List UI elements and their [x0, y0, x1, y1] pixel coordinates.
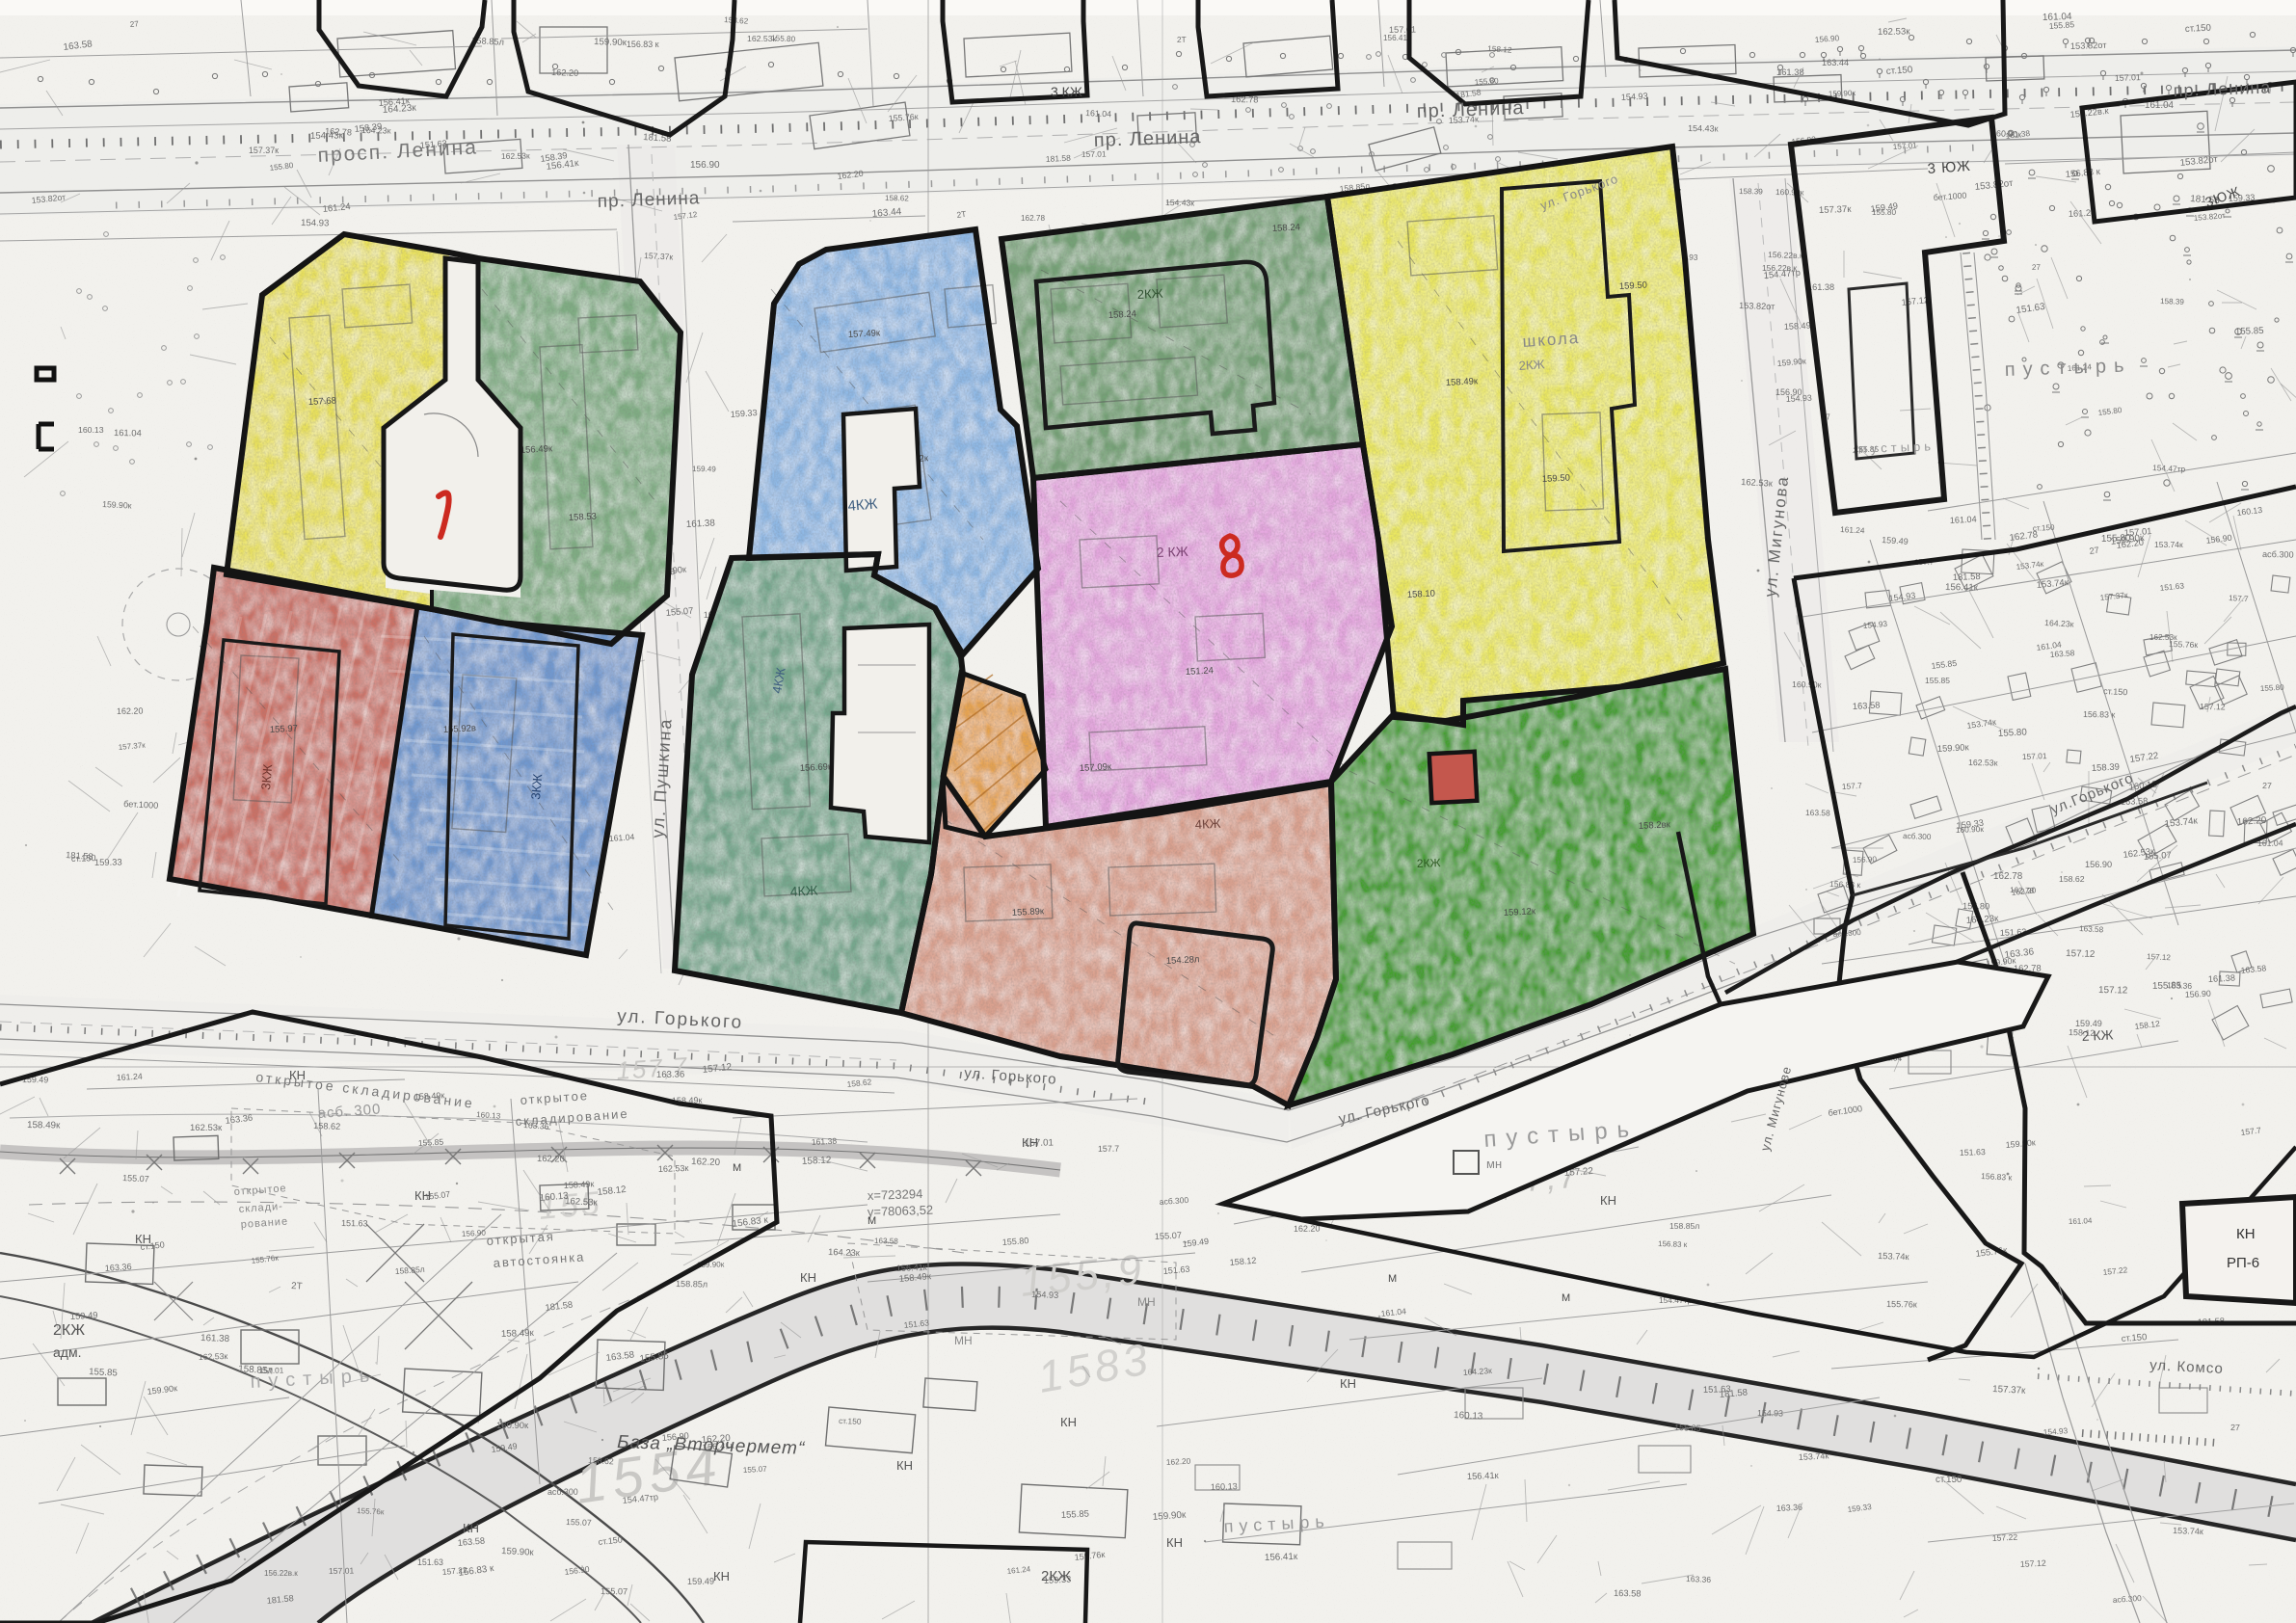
svg-text:159.90к: 159.90к — [501, 1546, 535, 1558]
svg-text:156.83 к: 156.83 к — [627, 40, 659, 49]
svg-text:158.62: 158.62 — [885, 194, 909, 202]
svg-text:162.20: 162.20 — [537, 1153, 565, 1163]
svg-text:160.90к: 160.90к — [496, 1421, 529, 1431]
svg-text:158.12: 158.12 — [1487, 43, 1512, 55]
svg-text:адм.: адм. — [53, 1344, 81, 1360]
svg-text:160.13: 160.13 — [476, 1110, 501, 1121]
svg-text:27: 27 — [2089, 545, 2100, 556]
svg-text:160.13: 160.13 — [1211, 1481, 1238, 1492]
svg-text:161.24: 161.24 — [117, 1072, 144, 1082]
svg-text:163.58: 163.58 — [1853, 700, 1881, 711]
svg-text:ст.150: ст.150 — [1885, 65, 1913, 77]
svg-text:2КЖ: 2КЖ — [1417, 856, 1441, 870]
svg-text:157.49к: 157.49к — [848, 328, 882, 340]
svg-text:РП-6: РП-6 — [2227, 1255, 2259, 1271]
svg-text:бет.1000: бет.1000 — [123, 799, 159, 811]
svg-text:154.93: 154.93 — [1786, 393, 1813, 404]
svg-text:154.28л: 154.28л — [1166, 954, 1200, 967]
svg-text:157.7: 157.7 — [1098, 1144, 1119, 1154]
svg-text:161.38: 161.38 — [812, 1136, 838, 1147]
svg-text:асб.300: асб.300 — [2112, 1593, 2142, 1605]
svg-text:162.20: 162.20 — [2236, 815, 2267, 828]
svg-text:x=723294: x=723294 — [868, 1186, 923, 1203]
svg-text:3 ЮЖ: 3 ЮЖ — [1927, 158, 1971, 177]
svg-text:27: 27 — [2230, 1423, 2240, 1432]
svg-text:156.22в.к: 156.22в.к — [1762, 263, 1797, 273]
svg-text:159.12к: 159.12к — [1504, 906, 1537, 918]
svg-text:155.85: 155.85 — [1061, 1508, 1090, 1521]
svg-text:КН: КН — [896, 1458, 913, 1473]
svg-text:160.13: 160.13 — [1454, 1410, 1483, 1423]
svg-text:157.7: 157.7 — [1842, 781, 1863, 791]
svg-text:162.53к: 162.53к — [565, 1196, 599, 1209]
svg-text:158.12: 158.12 — [802, 1155, 833, 1167]
svg-text:160.90к: 160.90к — [1792, 679, 1822, 690]
svg-text:163.58: 163.58 — [1805, 808, 1830, 817]
svg-text:155.85: 155.85 — [2235, 326, 2264, 337]
svg-text:153.82от: 153.82от — [1739, 301, 1775, 311]
svg-text:158.85л: 158.85л — [1669, 1221, 1699, 1231]
svg-text:155.80: 155.80 — [771, 34, 796, 43]
svg-text:156.41к: 156.41к — [1467, 1470, 1500, 1481]
svg-text:155.80: 155.80 — [2260, 683, 2285, 693]
svg-text:ст.150: ст.150 — [1936, 1475, 1962, 1485]
svg-text:2T: 2T — [1177, 35, 1187, 44]
svg-text:154.93: 154.93 — [301, 218, 330, 229]
svg-text:4КЖ: 4КЖ — [1194, 816, 1221, 832]
svg-text:155.85: 155.85 — [89, 1367, 118, 1379]
svg-text:2 КЖ: 2 КЖ — [1157, 544, 1188, 560]
svg-text:156.90: 156.90 — [2085, 860, 2112, 869]
svg-text:159.90к: 159.90к — [594, 37, 627, 48]
svg-text:159.49: 159.49 — [1882, 535, 1909, 546]
svg-text:асб.300: асб.300 — [1903, 832, 1932, 841]
svg-text:158.62: 158.62 — [2059, 874, 2085, 884]
svg-text:асб.300: асб.300 — [1159, 1195, 1188, 1207]
svg-text:155.07: 155.07 — [601, 1586, 627, 1596]
svg-text:155.07: 155.07 — [2143, 850, 2172, 863]
svg-text:154.43к: 154.43к — [310, 130, 344, 142]
svg-text:КН: КН — [1060, 1415, 1077, 1429]
svg-text:ст.150: ст.150 — [2185, 23, 2212, 35]
svg-text:159.50: 159.50 — [1619, 279, 1648, 292]
svg-text:158.39: 158.39 — [2160, 297, 2185, 306]
svg-text:157.12: 157.12 — [2066, 948, 2096, 960]
svg-text:157.12: 157.12 — [2020, 1558, 2047, 1569]
svg-text:156.41к: 156.41к — [1945, 582, 1979, 594]
svg-text:163.58: 163.58 — [2079, 924, 2104, 934]
svg-text:ст.150: ст.150 — [2121, 1332, 2147, 1344]
svg-text:161.04: 161.04 — [1950, 515, 1977, 525]
svg-text:пр. Ленина: пр. Ленина — [2173, 77, 2271, 100]
svg-text:КН: КН — [414, 1188, 431, 1203]
svg-text:154.47тр: 154.47тр — [2152, 463, 2186, 474]
svg-text:асб.300: асб.300 — [547, 1487, 578, 1497]
svg-text:2T: 2T — [956, 209, 967, 220]
svg-text:163.44: 163.44 — [1822, 58, 1849, 67]
svg-text:159.49: 159.49 — [687, 1577, 714, 1586]
svg-text:158.49к: 158.49к — [27, 1120, 61, 1131]
svg-text:158.62: 158.62 — [724, 15, 749, 26]
svg-text:151.63: 151.63 — [341, 1218, 368, 1228]
svg-text:КН: КН — [800, 1270, 816, 1285]
svg-text:161.38: 161.38 — [2208, 973, 2236, 984]
svg-text:161.24: 161.24 — [1840, 524, 1865, 535]
svg-text:МН: МН — [1137, 1295, 1156, 1309]
svg-text:27: 27 — [2262, 781, 2272, 790]
svg-text:157.7: 157.7 — [2229, 594, 2249, 603]
svg-text:156.90: 156.90 — [690, 160, 720, 171]
svg-text:162.78: 162.78 — [1021, 214, 1045, 223]
svg-text:158.39: 158.39 — [1739, 187, 1763, 196]
svg-text:151.63: 151.63 — [1703, 1383, 1731, 1395]
svg-text:154.93: 154.93 — [2042, 1425, 2068, 1437]
svg-text:162.78: 162.78 — [1993, 871, 2023, 882]
svg-text:КН: КН — [1166, 1535, 1183, 1550]
svg-text:157.01: 157.01 — [329, 1566, 355, 1576]
svg-text:М: М — [733, 1162, 741, 1174]
svg-text:158.39: 158.39 — [2092, 761, 2121, 774]
svg-text:155.07: 155.07 — [1155, 1231, 1183, 1241]
svg-text:181.58: 181.58 — [1953, 571, 1981, 582]
svg-text:160.13: 160.13 — [78, 425, 104, 435]
svg-text:162.53к: 162.53к — [199, 1351, 228, 1362]
svg-text:157.37к: 157.37к — [249, 146, 279, 155]
svg-text:163.36: 163.36 — [2167, 980, 2193, 991]
svg-text:158.24: 158.24 — [1272, 222, 1301, 234]
svg-text:153.82от: 153.82от — [2070, 40, 2108, 51]
svg-text:155.07: 155.07 — [566, 1517, 592, 1528]
svg-text:163.58: 163.58 — [874, 1237, 898, 1245]
svg-text:КН: КН — [135, 1232, 151, 1246]
svg-text:3КЖ: 3КЖ — [528, 773, 545, 800]
svg-text:156.41к: 156.41к — [1265, 1552, 1298, 1563]
svg-text:158.49к: 158.49к — [501, 1328, 535, 1340]
svg-text:асб.300: асб.300 — [2262, 549, 2294, 560]
svg-text:161.38: 161.38 — [200, 1333, 230, 1344]
svg-text:162.20: 162.20 — [117, 706, 144, 716]
svg-text:4КЖ: 4КЖ — [847, 495, 878, 515]
svg-text:157.68: 157.68 — [308, 395, 337, 408]
svg-text:2КЖ: 2КЖ — [1041, 1568, 1071, 1584]
svg-text:159.90к: 159.90к — [1937, 741, 1970, 754]
svg-text:155.76к: 155.76к — [2169, 639, 2199, 650]
svg-text:2КЖ: 2КЖ — [53, 1322, 85, 1339]
svg-text:181.58: 181.58 — [66, 850, 93, 862]
svg-text:157.01: 157.01 — [2022, 751, 2047, 761]
svg-text:161.04: 161.04 — [2069, 1216, 2093, 1226]
svg-text:155.80: 155.80 — [1001, 1236, 1028, 1247]
svg-text:159.50: 159.50 — [1542, 472, 1571, 485]
svg-text:3КЖ: 3КЖ — [258, 763, 275, 790]
svg-text:мн: мн — [1486, 1157, 1502, 1171]
svg-text:155.07: 155.07 — [743, 1465, 768, 1475]
svg-text:164.23к: 164.23к — [1462, 1366, 1492, 1377]
svg-text:КН: КН — [289, 1068, 306, 1082]
svg-text:153.74к: 153.74к — [1878, 1251, 1910, 1262]
svg-text:164.23к: 164.23к — [2044, 618, 2074, 629]
svg-text:ст.150: ст.150 — [839, 1416, 862, 1426]
svg-text:2T: 2T — [291, 1281, 303, 1292]
svg-text:161.04: 161.04 — [1085, 108, 1112, 119]
svg-text:153.74к: 153.74к — [2154, 540, 2183, 549]
svg-text:КН: КН — [1022, 1135, 1038, 1150]
svg-text:162.20: 162.20 — [551, 67, 578, 78]
svg-text:пустырь: пустырь — [2004, 355, 2131, 381]
svg-text:163.36: 163.36 — [656, 1069, 685, 1080]
svg-text:159.49: 159.49 — [692, 465, 716, 473]
svg-text:156.22в.к: 156.22в.к — [1768, 250, 1803, 260]
svg-text:151.24: 151.24 — [1186, 665, 1215, 678]
svg-text:155.85: 155.85 — [1925, 676, 1950, 685]
svg-text:пр. Ленина: пр. Ленина — [1416, 97, 1524, 122]
svg-text:3 КЖ: 3 КЖ — [1051, 84, 1082, 99]
svg-text:157.01: 157.01 — [2115, 72, 2141, 83]
svg-text:4КЖ: 4КЖ — [789, 883, 818, 899]
svg-text:МН: МН — [954, 1334, 973, 1347]
svg-text:КН: КН — [1340, 1376, 1356, 1391]
svg-text:158.62: 158.62 — [313, 1121, 340, 1131]
svg-text:2КЖ: 2КЖ — [1518, 357, 1545, 373]
svg-text:163.58: 163.58 — [1614, 1588, 1642, 1598]
svg-text:156.90: 156.90 — [462, 1229, 487, 1238]
svg-text:158.49к: 158.49к — [1446, 376, 1480, 388]
svg-text:ст.150: ст.150 — [2033, 523, 2056, 533]
svg-text:пустырь: пустырь — [1860, 439, 1936, 456]
svg-text:КН: КН — [713, 1569, 730, 1583]
svg-text:153.74к: 153.74к — [2173, 1526, 2204, 1536]
svg-text:157.09к: 157.09к — [1080, 761, 1113, 774]
svg-text:155.07: 155.07 — [122, 1173, 149, 1184]
svg-text:159.33: 159.33 — [730, 408, 757, 419]
svg-text:М: М — [868, 1215, 876, 1227]
svg-text:181.58: 181.58 — [1046, 153, 1072, 164]
svg-text:157.12: 157.12 — [2098, 985, 2127, 997]
svg-text:163.58: 163.58 — [2049, 648, 2075, 659]
svg-text:161.04: 161.04 — [2042, 12, 2072, 23]
svg-text:157.12: 157.12 — [2147, 952, 2172, 962]
svg-text:КН: КН — [2236, 1226, 2256, 1242]
svg-text:161.04: 161.04 — [114, 427, 142, 438]
svg-text:y=78063,52: y=78063,52 — [868, 1203, 934, 1219]
svg-text:156.83 к: 156.83 к — [1829, 879, 1861, 890]
svg-text:ст.150: ст.150 — [2103, 686, 2128, 697]
svg-text:КН: КН — [1600, 1193, 1616, 1208]
svg-text:27: 27 — [2032, 263, 2042, 272]
svg-text:162.53к: 162.53к — [658, 1163, 689, 1174]
svg-text:154.43к: 154.43к — [1165, 198, 1194, 208]
svg-text:пр. Ленина: пр. Ленина — [1093, 126, 1201, 151]
svg-text:156.69к: 156.69к — [800, 761, 834, 774]
svg-text:М: М — [1562, 1292, 1570, 1304]
svg-text:157.37к: 157.37к — [1819, 204, 1853, 216]
svg-text:155.97: 155.97 — [270, 723, 299, 735]
svg-text:162.20: 162.20 — [1166, 1456, 1191, 1467]
svg-text:156.49к: 156.49к — [521, 443, 554, 456]
svg-text:164.23к: 164.23к — [828, 1246, 861, 1258]
svg-text:162.20: 162.20 — [691, 1157, 721, 1168]
svg-text:154.93: 154.93 — [1757, 1408, 1783, 1418]
svg-text:158.10: 158.10 — [1407, 588, 1436, 600]
svg-text:162.53к: 162.53к — [501, 150, 530, 161]
svg-text:2 КЖ: 2 КЖ — [2081, 1026, 2114, 1044]
svg-text:157,7: 157,7 — [615, 1051, 689, 1085]
svg-text:156.90: 156.90 — [1853, 855, 1878, 865]
svg-text:162.53к: 162.53к — [190, 1123, 223, 1133]
svg-text:157.22: 157.22 — [1992, 1532, 2018, 1543]
svg-text:27: 27 — [129, 19, 139, 29]
svg-text:157.12: 157.12 — [2200, 702, 2226, 711]
svg-text:151.63: 151.63 — [1960, 1147, 1986, 1157]
svg-text:154.93: 154.93 — [1621, 92, 1648, 102]
svg-text:161.04: 161.04 — [608, 832, 634, 843]
svg-text:163.36: 163.36 — [104, 1262, 131, 1273]
svg-text:158.2вк: 158.2вк — [1639, 819, 1671, 832]
svg-text:155.80: 155.80 — [1475, 76, 1500, 87]
svg-text:157.01: 157.01 — [1893, 141, 1918, 151]
svg-text:154.93: 154.93 — [1031, 1290, 1058, 1300]
svg-text:156.83 к: 156.83 к — [2083, 709, 2116, 720]
svg-text:155.89к: 155.89к — [1012, 906, 1046, 918]
svg-text:161.38: 161.38 — [686, 518, 716, 530]
svg-text:156.22в.к: 156.22в.к — [264, 1569, 298, 1578]
svg-text:157.37к: 157.37к — [644, 251, 674, 262]
svg-text:155.76к: 155.76к — [357, 1506, 385, 1516]
svg-text:158.53: 158.53 — [569, 511, 598, 523]
svg-text:156.83 к: 156.83 к — [1658, 1239, 1688, 1249]
svg-text:155.92в: 155.92в — [443, 723, 477, 735]
svg-text:153.74к: 153.74к — [1799, 1450, 1829, 1462]
svg-text:158.49к: 158.49к — [564, 1179, 595, 1190]
svg-text:162.53к: 162.53к — [1968, 758, 1998, 768]
svg-text:156.90: 156.90 — [1814, 33, 1839, 44]
svg-text:пр. Ленина: пр. Ленина — [597, 188, 700, 212]
svg-text:157.37к: 157.37к — [1992, 1384, 2026, 1397]
svg-text:155.85: 155.85 — [1674, 1423, 1701, 1433]
svg-text:155.76к: 155.76к — [1886, 1299, 1918, 1310]
svg-text:158.62: 158.62 — [588, 1455, 614, 1466]
svg-text:158.85л: 158.85л — [676, 1279, 707, 1290]
svg-text:159.49: 159.49 — [70, 1310, 98, 1321]
svg-text:2КЖ: 2КЖ — [1136, 286, 1163, 302]
svg-text:М: М — [1388, 1273, 1397, 1285]
svg-text:162.53к: 162.53к — [1878, 26, 1911, 38]
svg-text:КН: КН — [463, 1521, 479, 1535]
svg-text:151.63: 151.63 — [417, 1557, 443, 1567]
svg-text:159.90к: 159.90к — [102, 499, 132, 511]
svg-text:162.53к: 162.53к — [1741, 476, 1774, 489]
svg-text:154.43к: 154.43к — [1688, 123, 1719, 134]
